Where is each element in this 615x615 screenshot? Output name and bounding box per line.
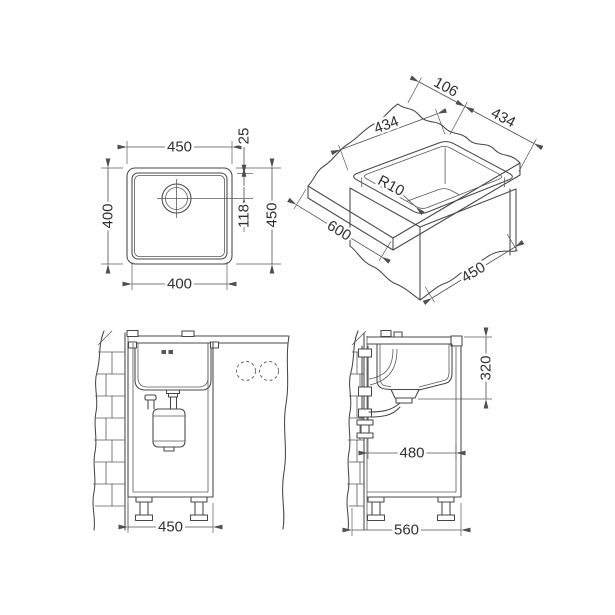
overflow-cover <box>182 331 194 337</box>
adjustable-feet <box>136 497 208 521</box>
top-view: 450 400 400 25 118 450 <box>100 128 282 293</box>
dim-side-drain-height: 320 <box>478 355 495 380</box>
sink-technical-drawing: 450 400 400 25 118 450 <box>0 0 615 615</box>
side-section-view: 320 480 560 <box>347 331 495 539</box>
sink-basin-side <box>377 344 452 403</box>
dim-iso-corner-radius: R10 <box>375 172 407 200</box>
adjustable-feet-side <box>368 497 455 521</box>
counter-edge-profile <box>451 336 462 346</box>
dim-top-outer-width: 450 <box>167 139 192 156</box>
mounting-clip-right <box>211 342 219 348</box>
dim-top-drain-offset: 118 <box>236 204 253 228</box>
dim-iso-back-clearance: 106 <box>431 74 461 101</box>
dim-top-bowl-height: 400 <box>100 203 117 228</box>
countertop-side <box>367 331 462 347</box>
drain-outlet <box>391 390 419 399</box>
logo-mark <box>162 350 167 354</box>
dim-front-cabinet-width: 450 <box>158 519 183 536</box>
dim-top-bowl-width: 400 <box>167 276 192 293</box>
dim-top-rim-offset: 25 <box>236 128 253 145</box>
isometric-view: 106 434 434 R10 600 450 <box>294 74 536 302</box>
sink-basin-front <box>129 342 219 390</box>
dim-side-cabinet-depth: 560 <box>394 522 419 539</box>
cabinet-side <box>367 347 461 497</box>
dim-top-outer-depth: 450 <box>264 202 281 227</box>
sink-technical-drawing-sheet: 450 400 400 25 118 450 <box>0 0 615 615</box>
sink-body-below-counter <box>350 188 516 300</box>
dim-iso-counter-depth: 450 <box>458 259 488 287</box>
dim-iso-cutout-left: 434 <box>372 113 401 138</box>
brick-wall <box>93 331 128 530</box>
logo-mark <box>169 350 174 354</box>
siphon-trap <box>145 390 185 451</box>
dim-side-clearance-width: 480 <box>399 445 424 462</box>
counter-cutout <box>354 142 513 214</box>
front-section-view: 450 <box>93 331 289 536</box>
mounting-clip-left <box>129 342 137 348</box>
sink-outline <box>127 168 232 264</box>
dim-iso-cutout-right: 434 <box>488 105 518 132</box>
drain-icon <box>157 179 196 218</box>
tap-hole-markers <box>237 362 279 381</box>
